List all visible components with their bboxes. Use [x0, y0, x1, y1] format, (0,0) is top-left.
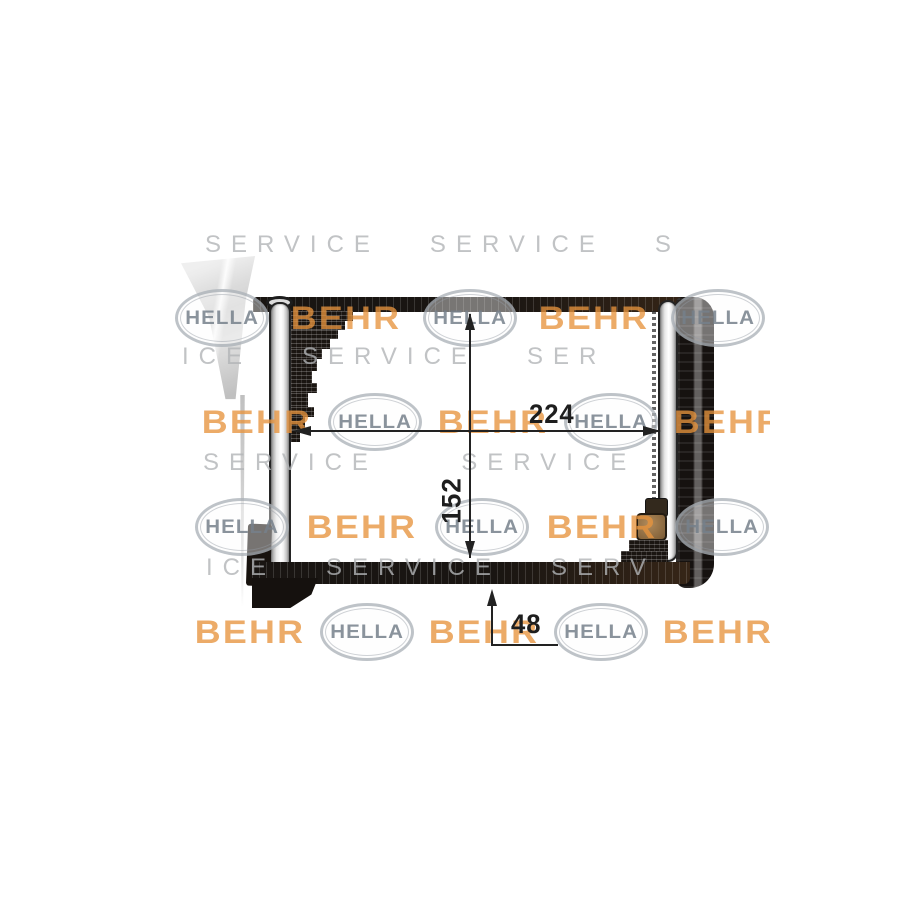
- depth-dimension-label: 48: [511, 611, 541, 638]
- dimension-annotations: 152 224 48: [0, 0, 900, 900]
- height-dimension-label: 152: [439, 469, 466, 531]
- width-arrow-right-icon: [643, 426, 661, 436]
- width-dimension-label: 224: [529, 401, 575, 428]
- width-dimension-line: [296, 430, 658, 432]
- depth-arrow-up-icon: [487, 589, 497, 606]
- depth-dimension-baseline: [491, 644, 558, 646]
- height-arrow-down-icon: [465, 541, 475, 558]
- height-arrow-up-icon: [465, 313, 475, 330]
- width-arrow-left-icon: [293, 426, 311, 436]
- height-dimension-line: [469, 314, 471, 558]
- product-image-page: SERVICE SERVICE SICE SERVICE SERSERVICE …: [0, 0, 900, 900]
